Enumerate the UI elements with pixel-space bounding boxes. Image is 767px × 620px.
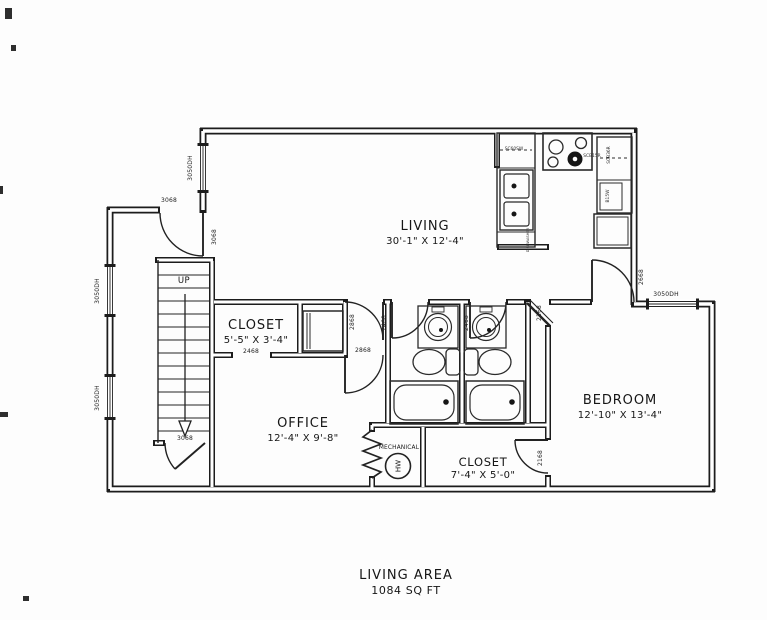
bedroom-dims: 12'-10" X 13'-4" [578, 410, 662, 421]
stairs-arrowhead-icon [179, 421, 191, 436]
scan-artifacts [0, 8, 29, 601]
window-left-upper [105, 264, 116, 317]
closet2-label: CLOSET [459, 455, 508, 469]
caption-area: 1084 SQ FT [371, 584, 440, 597]
stairs: UP [158, 260, 209, 443]
bath1-bathtub [390, 381, 458, 424]
kitchen-right-counter [597, 137, 632, 213]
refrigerator-icon [594, 214, 631, 248]
bath2-toilet [464, 349, 511, 375]
mechanical-label: MECHANICAL [379, 445, 420, 451]
window-entry-label: 3050DH [187, 155, 194, 181]
window-left-lower [105, 374, 116, 420]
bath2-vanity-sink [466, 306, 506, 348]
closet1-label: CLOSET [228, 318, 284, 333]
bath2-bathtub [466, 381, 524, 424]
cabinet-label-right3: B15W [605, 189, 611, 203]
window-entry [198, 143, 209, 193]
floorplan-svg: UP [0, 0, 767, 620]
office-dims: 12'-4" X 9'-8" [267, 433, 338, 444]
bathroom-1 [390, 306, 460, 424]
water-heater-label: HW [395, 460, 403, 472]
cabinet-label-right1: SCB15R [583, 153, 601, 159]
stairs-door-label: 3068 [177, 435, 193, 442]
bath1-door-label: 2468 [381, 315, 388, 331]
stairs-door-swing [165, 443, 205, 469]
living-dims: 30'-1" X 12'-4" [386, 236, 464, 247]
office-door-swing [345, 355, 383, 393]
bathroom-2 [464, 306, 524, 424]
floorplan-page: UP [0, 0, 767, 620]
window-bedroom [646, 299, 699, 310]
bath2-door-label: 2468 [463, 315, 470, 331]
bedroom-door-swing [592, 260, 634, 302]
kitchen-base-cabinet [600, 183, 622, 210]
window-left-lower-label: 3050DH [94, 385, 101, 411]
bath1-door-swing [392, 302, 428, 338]
living-label: LIVING [400, 219, 449, 234]
entry-door-label: 3068 [161, 197, 177, 204]
stove-icon [543, 133, 592, 170]
entry-door-swing-label: 3068 [211, 229, 218, 245]
bedroom-door-label: 2668 [638, 269, 645, 285]
closet-shelf-unit [303, 311, 343, 351]
cabinet-label-right2: SCB36R [606, 146, 612, 164]
walls-outer [107, 128, 715, 492]
window-bedroom-label: 3050DH [653, 291, 679, 298]
office-label: OFFICE [277, 416, 329, 431]
caption: LIVING AREA 1084 SQ FT [359, 568, 453, 597]
accordion-door-icon [363, 430, 381, 478]
closet2-door-label: 2168 [537, 450, 544, 466]
caption-title: LIVING AREA [359, 568, 453, 583]
window-left-upper-label: 3050DH [94, 278, 101, 304]
entry-door-swing [160, 213, 203, 256]
walls-interior-core [155, 131, 590, 489]
room-labels: LIVING 30'-1" X 12'-4" CLOSET 5'-5" X 3'… [224, 219, 662, 481]
bedroom-label: BEDROOM [583, 393, 657, 408]
kitchen-sink [500, 170, 533, 230]
hall-door-label: 2868 [349, 314, 356, 330]
walls-interior-outer [153, 128, 592, 492]
stairs-up-label: UP [178, 276, 190, 286]
closet1-door-label: 2468 [243, 348, 259, 355]
closet2-dims: 7'-4" X 5'-0" [451, 470, 515, 481]
closet1-dims: 5'-5" X 3'-4" [224, 335, 288, 346]
bath1-vanity-sink [418, 306, 458, 348]
cabinet-label-sink: SC60SW [505, 146, 524, 152]
bath1-toilet [413, 349, 460, 375]
bedroom-corner-door-label: 2168 [536, 305, 543, 321]
mechanical-room: HW MECHANICAL [363, 430, 420, 479]
office-door-label: 2868 [355, 347, 371, 354]
dishwasher-label: DISHWASHER [526, 227, 530, 252]
